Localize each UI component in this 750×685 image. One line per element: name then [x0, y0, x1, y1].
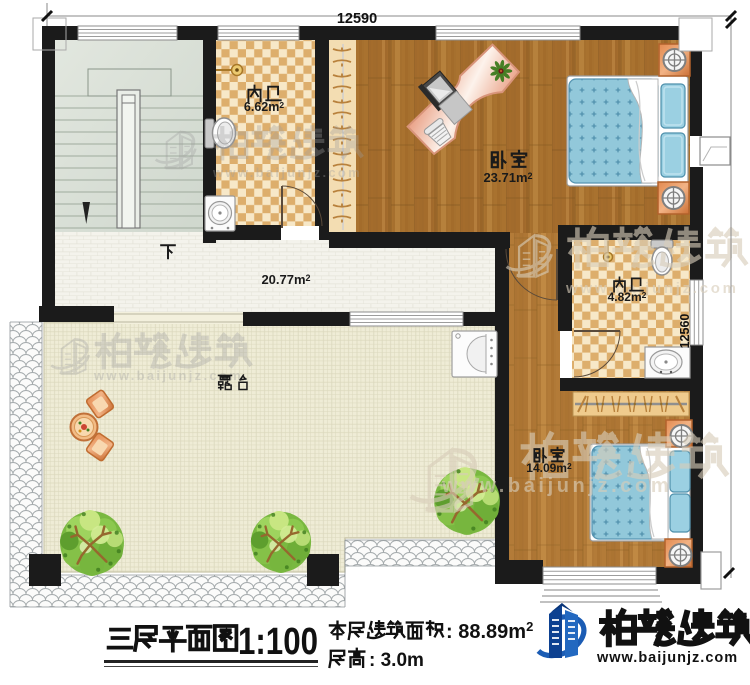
svg-text:www.baijunjz.com: www.baijunjz.com: [565, 280, 739, 297]
svg-text:www.baijunjz.com: www.baijunjz.com: [596, 650, 738, 666]
svg-text:12590: 12590: [337, 11, 377, 27]
svg-text:12560: 12560: [678, 314, 692, 349]
svg-text:: 88.89m2: : 88.89m2: [446, 619, 533, 643]
svg-text:20.77m2: 20.77m2: [261, 272, 310, 287]
svg-text:1:100: 1:100: [238, 621, 318, 663]
svg-text:www.baijunjz.com: www.baijunjz.com: [441, 475, 672, 497]
svg-text:4.82m2: 4.82m2: [608, 290, 647, 304]
svg-text:www.baijunjz.com: www.baijunjz.com: [212, 165, 362, 180]
svg-text:6.62m2: 6.62m2: [244, 100, 284, 114]
svg-text:23.71m2: 23.71m2: [483, 170, 532, 185]
svg-text:14.09m2: 14.09m2: [526, 461, 572, 475]
svg-text:: 3.0m: : 3.0m: [369, 650, 424, 671]
